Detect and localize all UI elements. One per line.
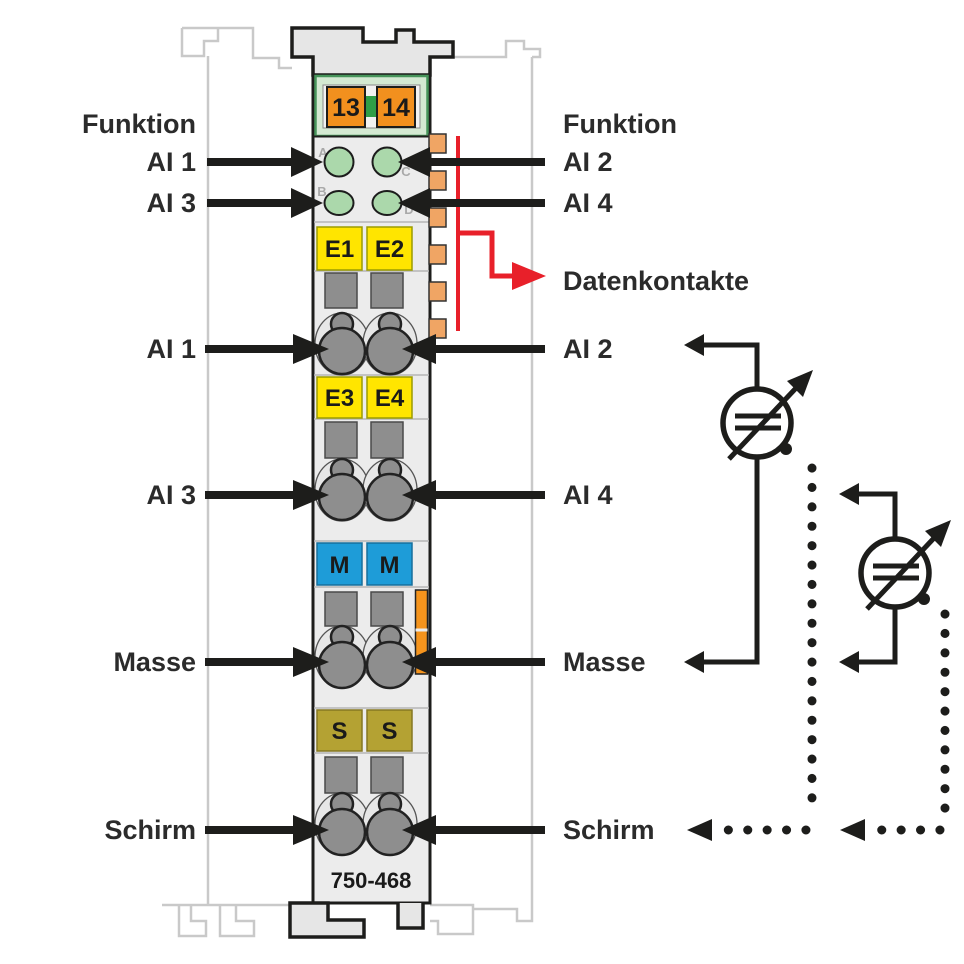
datenkontakte-arrowhead xyxy=(512,262,546,290)
label-ai4-terminal: AI 4 xyxy=(563,479,613,511)
shield-tap-dot xyxy=(918,593,930,605)
arrow-ai1-led xyxy=(207,147,323,177)
label-ai3-terminal: AI 3 xyxy=(146,479,196,511)
marker-m2-label: M xyxy=(380,552,400,579)
label-ai4-led: AI 4 xyxy=(563,187,613,219)
label-ai2-terminal: AI 2 xyxy=(563,333,613,365)
power-contact-13-label: 13 xyxy=(332,94,360,122)
arrow-masse-terminal xyxy=(205,647,329,677)
led-a xyxy=(325,148,354,177)
power-contact-14-label: 14 xyxy=(382,94,410,122)
led-b xyxy=(325,191,354,215)
label-ai1-terminal: AI 1 xyxy=(146,333,196,365)
led-c xyxy=(373,148,402,177)
led-b-label: B xyxy=(317,184,326,199)
jumper-green-contact xyxy=(366,96,377,117)
marker-s1-label: S xyxy=(331,718,347,745)
label-masse-left: Masse xyxy=(113,646,196,678)
label-schirm-left: Schirm xyxy=(104,814,196,846)
label-masse-right: Masse xyxy=(563,646,646,678)
label-funktion-left: Funktion xyxy=(82,108,196,140)
arrow-schirm-terminal xyxy=(205,815,329,845)
left-arrows xyxy=(205,147,329,845)
led-d xyxy=(373,191,402,215)
module-bottom-clip-right xyxy=(398,903,423,928)
module-bottom-clip-left xyxy=(290,903,364,937)
sensor-symbol-1 xyxy=(684,334,813,673)
label-ai2-led: AI 2 xyxy=(563,146,613,178)
part-number: 750-468 xyxy=(331,868,412,893)
arrow-ai1-terminal xyxy=(205,334,329,364)
marker-m1-label: M xyxy=(330,552,350,579)
marker-e1-label: E1 xyxy=(325,236,354,263)
label-ai3-led: AI 3 xyxy=(146,187,196,219)
label-datenkontakte: Datenkontakte xyxy=(563,265,749,297)
marker-s2-label: S xyxy=(381,718,397,745)
label-ai1-led: AI 1 xyxy=(146,146,196,178)
module-top-clip xyxy=(292,28,453,75)
arrow-ai3-led xyxy=(207,188,323,218)
marker-e4-label: E4 xyxy=(375,385,405,412)
wiring-diagram-750-468: 13 14 A B C D E1 E2 E3 E4 M M xyxy=(0,0,964,964)
marker-e3-label: E3 xyxy=(325,385,354,412)
label-schirm-right: Schirm xyxy=(563,814,655,846)
shield-tap-dot xyxy=(780,443,792,455)
arrow-ai3-terminal xyxy=(205,480,329,510)
label-funktion-right: Funktion xyxy=(563,108,677,140)
marker-e2-label: E2 xyxy=(375,236,404,263)
sensor-symbol-2 xyxy=(839,483,951,673)
power-jumper-panel: 13 14 xyxy=(313,76,430,137)
shield-dotted-connection-1 xyxy=(687,468,812,841)
